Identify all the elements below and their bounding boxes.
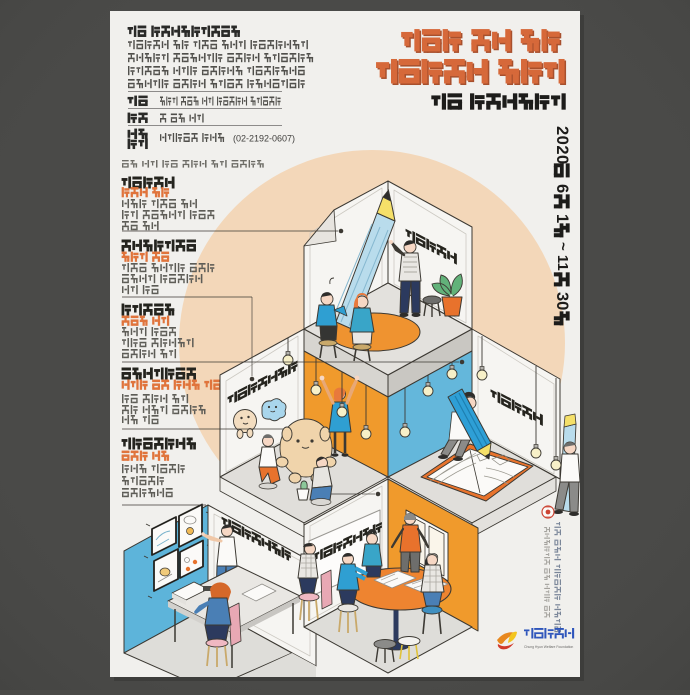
svg-text:6: 6 [553,184,571,193]
svg-text:Chung Hyun Welfare Foundation: Chung Hyun Welfare Foundation [524,645,573,649]
svg-text:1: 1 [553,214,571,223]
svg-text:2020: 2020 [553,126,571,165]
svg-text:~ 11: ~ 11 [554,242,571,271]
svg-text:30: 30 [553,292,571,310]
svg-text:(02-2192-0607): (02-2192-0607) [233,134,295,144]
